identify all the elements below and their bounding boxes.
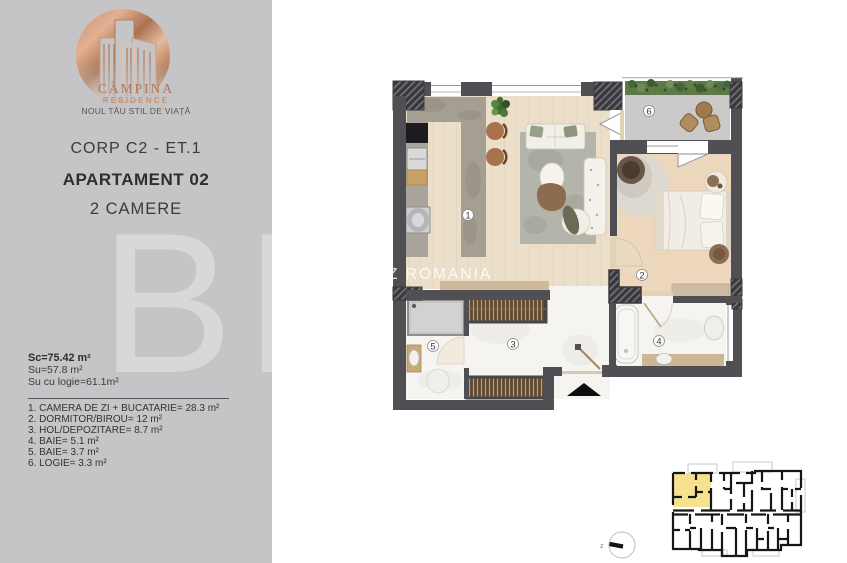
svg-text:2: 2 [639,271,644,282]
svg-text:4: 4 [656,337,661,348]
svg-text:3: 3 [510,340,515,351]
svg-text:z: z [600,543,604,550]
svg-text:6: 6 [646,107,651,118]
svg-text:5: 5 [430,342,435,353]
svg-text:Z ROMANIA: Z ROMANIA [388,266,492,283]
svg-text:1: 1 [465,211,470,222]
